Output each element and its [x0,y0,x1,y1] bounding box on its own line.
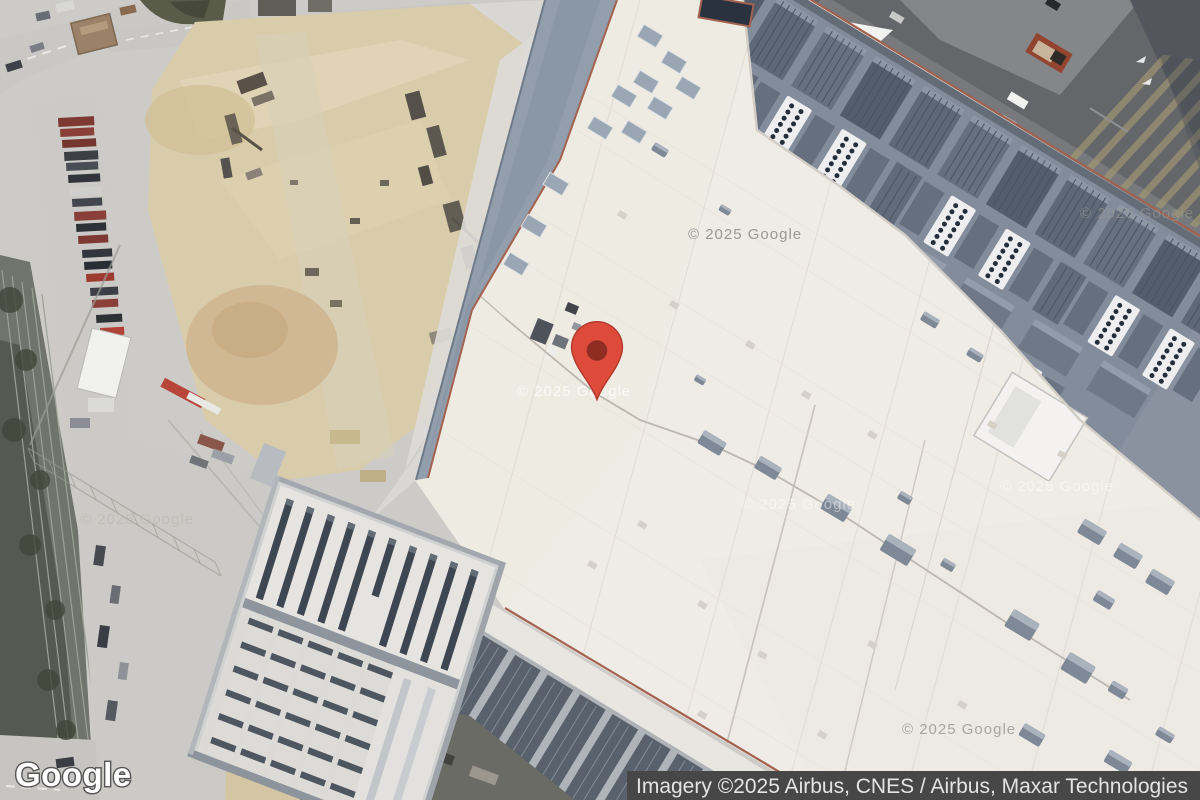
svg-text:© 2025 Google: © 2025 Google [80,511,194,528]
svg-text:© 2025 Google: © 2025 Google [1000,478,1114,495]
svg-text:© 2025 Google: © 2025 Google [517,383,631,400]
svg-text:© 2025 Google: © 2025 Google [902,721,1016,738]
svg-text:© 2025 Google: © 2025 Google [1080,205,1194,222]
svg-text:Google: Google [15,756,132,793]
svg-text:© 2025 Google: © 2025 Google [688,226,802,243]
svg-text:Imagery ©2025 Airbus, CNES / A: Imagery ©2025 Airbus, CNES / Airbus, Max… [636,775,1188,798]
svg-text:© 2025 Google: © 2025 Google [742,496,856,513]
